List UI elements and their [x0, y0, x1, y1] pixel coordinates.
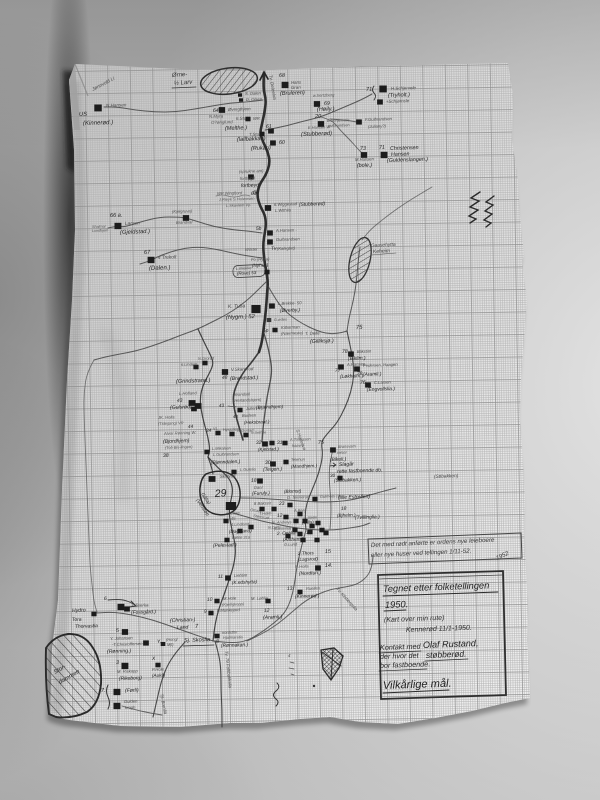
svg-text:A.Tolmasen: A.Tolmasen [289, 436, 312, 442]
svg-text:23: 23 [278, 501, 285, 507]
svg-text:C.Larsen: C.Larsen [374, 379, 392, 385]
svg-text:(sprukne am): (sprukne am) [239, 168, 264, 174]
svg-text:(Pelestad.): (Pelestad.) [213, 542, 237, 549]
svg-text:8 Baksvir: 8 Baksvir [254, 500, 272, 506]
svg-text:Gulbrandsen: Gulbrandsen [276, 236, 301, 242]
svg-text:4b: 4b [233, 414, 239, 419]
svg-text:(Bruleren): (Bruleren) [280, 90, 305, 97]
svg-text:18: 18 [251, 478, 257, 484]
svg-text:Y. Johansen: Y. Johansen [110, 635, 134, 641]
svg-text:haavre: haavre [292, 443, 305, 448]
svg-text:16: 16 [306, 530, 312, 536]
svg-text:75: 75 [356, 325, 363, 331]
svg-text:3: 3 [116, 660, 119, 666]
svg-text:(Teigen.): (Teigen.) [263, 466, 283, 473]
svg-text:78: 78 [342, 349, 348, 355]
svg-text:(Juliany?): (Juliany?) [368, 123, 387, 129]
svg-text:N.Myra: N.Myra [209, 113, 224, 119]
svg-text:L.Withlia: L.Withlia [275, 207, 292, 213]
svg-text:Hjalmarstia: Hjalmarstia [223, 634, 244, 640]
svg-text:(Nyhus): (Nyhus) [252, 262, 269, 268]
svg-text:(Kjelstad.): (Kjelstad.) [258, 446, 280, 452]
svg-text:bor fastboende.: bor fastboende. [380, 659, 431, 670]
svg-text:(Kjerligkopp): (Kjerligkopp) [222, 601, 245, 607]
svg-text:Brandstli: Brandstli [234, 391, 251, 397]
svg-text:VL: VL [213, 426, 218, 431]
svg-text:9: 9 [204, 609, 207, 615]
svg-text:(Kalsgbrt): (Kalsgbrt) [277, 245, 296, 251]
svg-text:(Høily.): (Høily.) [317, 106, 335, 113]
svg-text:75: 75 [318, 440, 324, 446]
svg-text:Thorvastia: Thorvastia [75, 623, 98, 630]
svg-text:4.Lindland: 4.Lindland [231, 521, 250, 527]
svg-text:(Øverby.): (Øverby.) [280, 307, 301, 314]
svg-text:Lieblim: Lieblim [234, 573, 248, 578]
svg-text:L.Mikalsen: L.Mikalsen [212, 445, 232, 451]
svg-text:(Stibakken): (Stibakken) [434, 473, 459, 480]
svg-text:66 a.: 66 a. [110, 213, 123, 219]
svg-text:12: 12 [277, 513, 283, 519]
svg-text:Tora: Tora [72, 617, 82, 623]
svg-text:reiser: reiser [337, 450, 348, 455]
svg-text:14.: 14. [325, 563, 333, 569]
svg-text:(Stubberød): (Stubberød) [299, 201, 326, 208]
svg-text:(Furuly.): (Furuly.) [252, 490, 270, 497]
svg-text:(Rikeborg): (Rikeborg) [119, 675, 142, 682]
svg-text:Burlsen: Burlsen [242, 412, 257, 418]
svg-text:L.Hofland: L.Hofland [179, 390, 198, 396]
svg-text:JK. Holla: JK. Holla [157, 414, 175, 420]
svg-text:(Rove) 53: (Rove) 53 [237, 270, 257, 276]
svg-text:44: 44 [188, 424, 194, 429]
svg-text:Gåserka: Gåserka [132, 602, 149, 608]
svg-text:6.Wiggestad: 6.Wiggestad [274, 201, 298, 207]
svg-text:D. Olsen: D. Olsen [246, 96, 263, 102]
svg-text:(Gulsrød): (Gulsrød) [170, 404, 192, 411]
svg-text:K. Tuba: K. Tuba [228, 303, 246, 310]
svg-text:O?ønglund: O?ønglund [211, 119, 233, 125]
svg-text:Larsen: Larsen [125, 220, 140, 227]
svg-text:(Nærmeste): (Nærmeste) [281, 330, 304, 336]
svg-text:Bøhle 31a: Bøhle 31a [232, 534, 251, 540]
svg-text:krogh: krogh [125, 705, 136, 710]
svg-text:29: 29 [213, 488, 227, 500]
svg-text:(Dagsland): (Dagsland) [229, 528, 252, 534]
svg-text:Gran: Gran [291, 85, 301, 90]
svg-text:(Aramli.): (Aramli.) [263, 614, 283, 621]
svg-text:Telehun: Telehun [291, 456, 306, 462]
svg-text:Øvergthjem: Øvergthjem [227, 106, 251, 112]
svg-text:Land: Land [177, 625, 189, 631]
svg-text:5p: 5p [263, 328, 269, 334]
svg-text:O.Lund: O.Lund [284, 542, 298, 547]
svg-text:38: 38 [163, 453, 169, 459]
svg-text:M.Hole: M.Hole [223, 596, 237, 601]
svg-text:68: 68 [279, 73, 285, 79]
svg-text:6.Lindem: 6.Lindem [181, 361, 198, 367]
svg-text:S. Dalen: S. Dalen [245, 90, 262, 96]
svg-text:78: 78 [357, 371, 363, 377]
svg-text:(K.edshytta): (K.edshytta) [232, 579, 258, 585]
svg-text:(Bjhelm.): (Bjhelm.) [337, 512, 356, 518]
svg-text:(bole.): (bole.) [357, 162, 373, 169]
svg-text:(Mandhjem.): (Mandhjem.) [291, 463, 318, 469]
svg-text:(Kinnerød.): (Kinnerød.) [83, 120, 113, 127]
svg-text:H.Schjervele: H.Schjervele [391, 85, 417, 91]
svg-text:A.Hansen -: A.Hansen - [275, 227, 298, 233]
svg-text:(Bjønndalen.): (Bjønndalen.) [211, 459, 241, 466]
svg-text:(Gjeldstad.): (Gjeldstad.) [120, 229, 150, 236]
svg-text:Lundhjem: Lundhjem [92, 228, 109, 233]
svg-text:(Gilliksjø.): (Gilliksjø.) [310, 338, 334, 345]
svg-text:2.Thors: 2.Thors [297, 550, 315, 556]
svg-text:F.Gulbrandsen: F.Gulbrandsen [365, 116, 393, 122]
svg-text:43: 43 [177, 398, 183, 404]
svg-text:(Brændhjem): (Brændhjem) [256, 404, 284, 410]
svg-text:Blikstim: Blikstim [357, 348, 372, 354]
svg-text:12: 12 [264, 608, 270, 614]
svg-text:(Melthe.): (Melthe.) [225, 125, 247, 132]
svg-text:WR: WR [253, 116, 260, 121]
svg-text:Y.: Y. [157, 639, 161, 645]
svg-text:5b: 5b [256, 226, 262, 232]
svg-text:Selm: Selm [308, 515, 318, 520]
svg-text:Slagår: Slagår [339, 460, 354, 468]
svg-text:N.Sethlie: N.Sethlie [251, 430, 266, 435]
svg-text:(Blomst): (Blomst) [284, 488, 302, 494]
svg-text:P.Hole: P.Hole [152, 667, 165, 672]
svg-text:(Herlandshjem): (Herlandshjem) [233, 397, 262, 403]
svg-text:(Aramli.): (Aramli.) [363, 371, 382, 378]
svg-text:30: 30 [265, 460, 271, 466]
svg-text:fortbygd: fortbygd [240, 175, 256, 181]
svg-text:(Brandstad.): (Brandstad.) [230, 375, 259, 382]
svg-text:(Stubberød): (Stubberød) [301, 131, 332, 138]
svg-text:Fo (Hytta): Fo (Hytta) [251, 256, 270, 262]
svg-text:(Kjelgruva): (Kjelgruva) [172, 208, 193, 214]
svg-text:E.Hansen W: E.Hansen W [308, 124, 332, 130]
svg-text:P.Munkejord: P.Munkejord [217, 607, 241, 613]
svg-text:N.Dahl: N.Dahl [268, 525, 281, 530]
svg-text:11: 11 [218, 574, 224, 580]
svg-text:77: 77 [335, 368, 341, 374]
svg-text:T. Delle: T. Delle [305, 330, 320, 336]
svg-text:(Nordtun.): (Nordtun.) [299, 570, 322, 577]
svg-text:(Dalen.): (Dalen.) [149, 265, 171, 272]
svg-text:N.Hansen: N.Hansen [106, 102, 127, 108]
svg-text:(Aukli): (Aukli) [152, 673, 166, 678]
svg-text:(Lagsrod): (Lagsrod) [298, 556, 319, 562]
svg-text:18: 18 [341, 506, 347, 512]
svg-text:(Heksbraat.): (Heksbraat.) [244, 419, 270, 425]
svg-text:WP Wingfjord: WP Wingfjord [217, 190, 243, 196]
svg-text:Ruellen: Ruellen [306, 585, 321, 591]
svg-text:+Schjørnsle: +Schjørnsle [386, 98, 410, 104]
svg-text:(Christian-): (Christian-) [170, 617, 196, 624]
svg-text:N.Grorud: N.Grorud [198, 355, 215, 361]
svg-text:48: 48 [222, 375, 228, 381]
svg-text:Ørne-: Ørne- [171, 72, 188, 79]
svg-text:V.Skansrud: V.Skansrud [231, 366, 254, 372]
svg-text:32: 32 [256, 440, 262, 446]
svg-text:L.Gutelia: L.Gutelia [240, 466, 257, 472]
svg-text:(Tvillinglia.): (Tvillinglia.) [355, 514, 380, 521]
svg-text:Mjt): Mjt) [167, 642, 174, 647]
svg-text:½ Larv: ½ Larv [174, 79, 194, 87]
svg-text:(Tob Bis-lingen): (Tob Bis-lingen) [165, 444, 193, 450]
svg-text:(lallbakkan): (lallbakkan) [237, 136, 266, 143]
svg-text:Wilster: Wilster [245, 247, 258, 252]
svg-text:N.Holla: N.Holla [295, 564, 309, 569]
svg-text:(Rukan): (Rukan) [251, 145, 271, 152]
svg-text:w.hertzberg: w.hertzberg [313, 92, 335, 98]
svg-text:(Rønning.): (Rønning.) [107, 648, 132, 655]
svg-text:(Engvollslia.): (Engvollslia.) [367, 386, 396, 393]
svg-text:43: 43 [219, 403, 225, 408]
svg-text:8: 8 [216, 639, 219, 645]
svg-text:Danl: Danl [254, 485, 264, 490]
svg-text:(Kinnerød.): (Kinnerød.) [295, 593, 320, 600]
svg-text:31: 31 [277, 440, 283, 446]
svg-text:(Grindstrand.): (Grindstrand.) [176, 378, 211, 385]
svg-text:fortbøyd: fortbøyd [241, 182, 259, 189]
svg-text:Brandval: Brandval [176, 219, 194, 225]
svg-text:71: 71 [366, 87, 372, 93]
svg-text:gulbrandsen: gulbrandsen [328, 122, 351, 128]
svg-text:US: US [79, 112, 87, 118]
svg-text:(Rønnakan.): (Rønnakan.) [221, 642, 249, 649]
svg-text:5: 5 [116, 628, 119, 634]
svg-text:4 Trekolt: 4 Trekolt [158, 254, 177, 261]
svg-text:M. Riskopp: M. Riskopp [117, 668, 139, 674]
svg-text:Hydro: Hydro [72, 608, 86, 614]
svg-text:O. Stenerud: O. Stenerud [287, 494, 310, 500]
svg-text:Sj. Skoslia: Sj. Skoslia [184, 637, 210, 644]
svg-text:13.: 13. [287, 586, 294, 592]
svg-text:(lille Estrellen): (lille Estrellen) [338, 494, 371, 501]
svg-text:(Tidegang) VR: (Tidegang) VR [158, 420, 184, 426]
svg-text:10: 10 [207, 597, 213, 603]
svg-text:1950.: 1950. [385, 599, 409, 610]
svg-text:Bransvatn: Bransvatn [338, 443, 357, 449]
svg-text:A.Berg: A.Berg [293, 508, 307, 513]
svg-text:Vilkårlige mål.: Vilkårlige mål. [383, 678, 452, 692]
svg-text:L.Brekke- 50: L.Brekke- 50 [278, 300, 302, 306]
svg-text:76: 76 [360, 380, 366, 386]
svg-text:60: 60 [279, 140, 285, 146]
svg-text:G.ødes: G.ødes [274, 317, 287, 322]
svg-text:L.Gulbrandsen: L.Gulbrandsen [213, 451, 240, 457]
svg-text:7.: 7. [101, 688, 106, 694]
svg-text:T.Holm: T.Holm [259, 511, 272, 516]
svg-text:67: 67 [144, 250, 151, 256]
svg-text:Gulden: Gulden [124, 699, 138, 704]
svg-text:73: 73 [360, 146, 366, 152]
svg-text:Kilborman: Kilborman [281, 324, 301, 330]
svg-text:71: 71 [379, 145, 385, 151]
svg-text:30: 30 [330, 473, 336, 478]
svg-text:15: 15 [325, 549, 331, 555]
svg-text:34: 34 [206, 428, 212, 434]
svg-text:20: 20 [314, 114, 322, 120]
svg-text:M.Hansen: M.Hansen [355, 156, 375, 162]
svg-text:(Nygm.) 52: (Nygm.) 52 [226, 314, 256, 321]
svg-text:støbberød.: støbberød. [426, 649, 467, 660]
svg-text:6: 6 [104, 596, 107, 602]
svg-text:(Førli): (Førli) [125, 688, 139, 694]
svg-text:L.Skavlem Vp.: L.Skavlem Vp. [226, 202, 252, 208]
